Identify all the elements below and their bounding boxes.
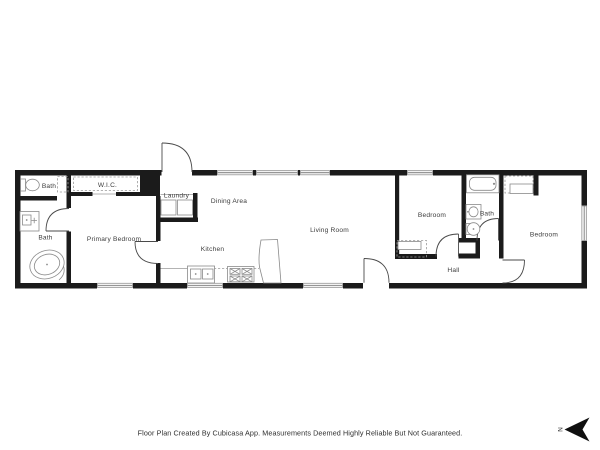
middle-bedroom-door-icon [436,234,459,257]
window-icon [218,171,253,175]
room-label-dining: Dining Area [211,198,247,205]
hall-bath-door-icon [477,219,499,241]
wall-segment [67,175,72,208]
room-label-laundry: Laundry [164,193,190,200]
back-door-icon [162,143,192,172]
wall-segment [534,175,539,196]
back-door-opening [162,170,193,177]
vanity-sink-icon [20,212,39,232]
room-label-kitchen: Kitchen [201,246,225,253]
bath-sink-icon [466,205,481,220]
window-icon [188,283,223,287]
north-label: N [556,427,563,431]
disclaimer-text: Floor Plan Created By Cubicasa App. Meas… [138,429,463,438]
wall-segment [462,175,467,241]
bathtub-icon [467,175,500,193]
wall-segment [20,196,57,201]
window-icon [408,171,433,175]
front-door-icon [364,259,389,283]
front-door-opening [363,283,389,289]
toilet-icon [466,223,480,236]
dryer-icon [178,200,193,215]
wall-segment [67,232,72,284]
wall-segment [459,238,478,243]
right-bedroom-door-icon [503,260,525,283]
toilet-icon [21,179,40,191]
wall-segment [116,192,140,196]
wall-segment [395,254,437,259]
room-label-wic: W.I.C. [98,182,117,189]
primary-bedroom-door-icon [135,242,158,264]
room-label-bath-hall: Bath [480,211,494,218]
window-icon [304,283,343,287]
window-icon [98,283,133,287]
room-label-bedroom-middle: Bedroom [418,212,446,219]
room-label-bath-primary: Bath [38,235,52,242]
room-label-primary-bedroom: Primary Bedroom [87,236,142,243]
window-icon [582,206,587,241]
peninsula-counter [259,240,281,284]
room-label-bath-small: Bath [42,183,56,190]
floor-plan-page: Bath W.I.C. Bath Primary Bedroom Laundry… [0,0,600,450]
window-icon [301,171,330,175]
wall-segment [140,175,160,196]
wall-segment [476,238,481,259]
garden-tub-icon [26,245,68,283]
doors [46,143,525,283]
floor-plan-canvas: Bath W.I.C. Bath Primary Bedroom Laundry… [0,0,600,450]
north-arrow-icon: N [556,418,590,442]
room-label-hall: Hall [447,267,459,274]
room-label-bedroom-right: Bedroom [530,232,558,239]
washer-icon [161,200,176,215]
wall-segment [499,175,504,259]
wall-segment [156,218,198,223]
kitchen-sink-icon [188,266,215,283]
right-bedroom-closet [505,176,533,194]
wall-segment [156,263,161,283]
wall-segment [67,192,93,196]
primary-bath-door-icon [46,209,69,232]
linen-closet-dashed [58,177,69,193]
stove-icon [228,267,255,283]
window-icon [257,171,298,175]
room-label-living: Living Room [310,227,349,234]
